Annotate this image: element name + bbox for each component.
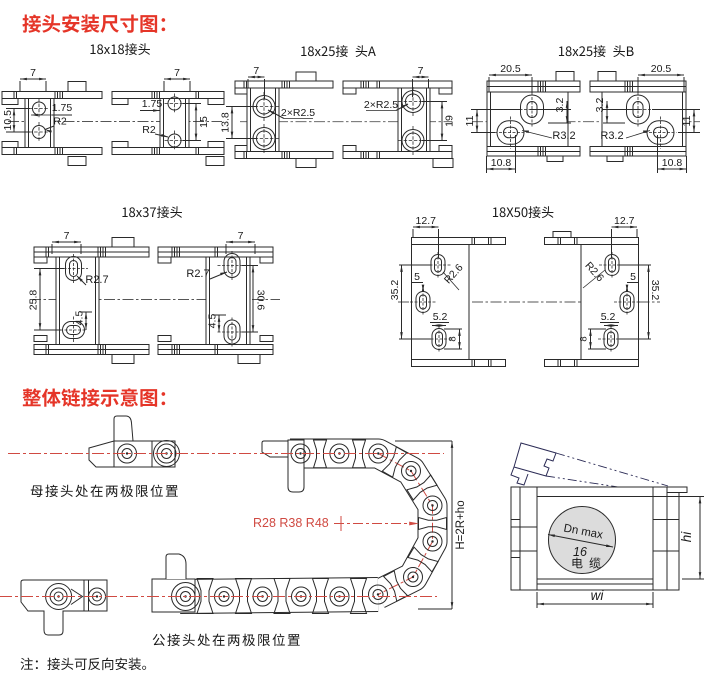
svg-text:5: 5 bbox=[414, 271, 420, 283]
svg-text:7: 7 bbox=[174, 67, 180, 79]
svg-text:12.7: 12.7 bbox=[416, 215, 437, 227]
svg-text:5.2: 5.2 bbox=[601, 311, 616, 323]
svg-text:R2: R2 bbox=[53, 116, 67, 128]
svg-text:2×R2.5: 2×R2.5 bbox=[364, 99, 398, 111]
svg-text:7: 7 bbox=[418, 65, 424, 77]
svg-text:15: 15 bbox=[198, 116, 210, 128]
svg-text:11: 11 bbox=[681, 115, 693, 126]
svg-text:R3.2: R3.2 bbox=[552, 130, 575, 142]
svg-text:wi: wi bbox=[591, 588, 605, 603]
svg-text:16: 16 bbox=[573, 545, 587, 559]
svg-text:1.75: 1.75 bbox=[142, 98, 163, 110]
svg-text:20.5: 20.5 bbox=[500, 63, 521, 75]
svg-text:13.8: 13.8 bbox=[220, 112, 232, 133]
svg-text:10.5: 10.5 bbox=[2, 110, 14, 131]
svg-text:8: 8 bbox=[579, 336, 590, 341]
svg-text:4.5: 4.5 bbox=[74, 311, 86, 326]
svg-text:35.2: 35.2 bbox=[649, 280, 661, 301]
svg-text:10.8: 10.8 bbox=[491, 157, 512, 169]
svg-text:5.2: 5.2 bbox=[433, 311, 448, 323]
svg-text:H=2R+ho: H=2R+ho bbox=[455, 500, 467, 549]
svg-text:3.2: 3.2 bbox=[594, 98, 606, 113]
svg-text:25.8: 25.8 bbox=[28, 290, 40, 311]
svg-text:7: 7 bbox=[30, 67, 36, 79]
svg-text:30.6: 30.6 bbox=[255, 290, 267, 311]
svg-text:4.5: 4.5 bbox=[207, 314, 219, 329]
svg-text:5: 5 bbox=[630, 271, 636, 283]
svg-text:R28 R38 R48: R28 R38 R48 bbox=[253, 516, 329, 530]
svg-text:2×R2.5: 2×R2.5 bbox=[281, 107, 315, 119]
svg-text:R3.2: R3.2 bbox=[600, 130, 623, 142]
svg-text:8: 8 bbox=[448, 336, 459, 341]
svg-text:1.75: 1.75 bbox=[52, 102, 73, 114]
svg-text:R2.7: R2.7 bbox=[85, 274, 108, 286]
svg-text:3.2: 3.2 bbox=[554, 98, 566, 113]
svg-text:R2: R2 bbox=[142, 124, 156, 136]
svg-text:7: 7 bbox=[253, 65, 259, 77]
svg-text:35.2: 35.2 bbox=[389, 280, 401, 301]
svg-text:hi: hi bbox=[679, 531, 694, 543]
svg-text:20.5: 20.5 bbox=[651, 63, 672, 75]
svg-text:R2.7: R2.7 bbox=[186, 268, 209, 280]
svg-text:7: 7 bbox=[238, 230, 244, 242]
svg-text:12.7: 12.7 bbox=[614, 215, 635, 227]
svg-text:10.8: 10.8 bbox=[662, 157, 683, 169]
svg-text:7: 7 bbox=[64, 230, 70, 242]
svg-text:11: 11 bbox=[464, 115, 476, 126]
svg-text:19: 19 bbox=[444, 115, 456, 127]
